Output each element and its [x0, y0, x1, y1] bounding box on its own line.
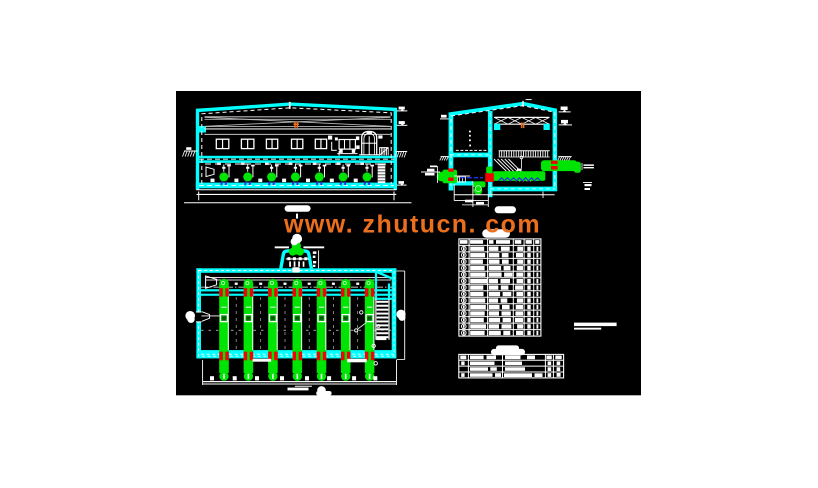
- svg-text:www. zhutucn. com: www. zhutucn. com: [283, 211, 541, 239]
